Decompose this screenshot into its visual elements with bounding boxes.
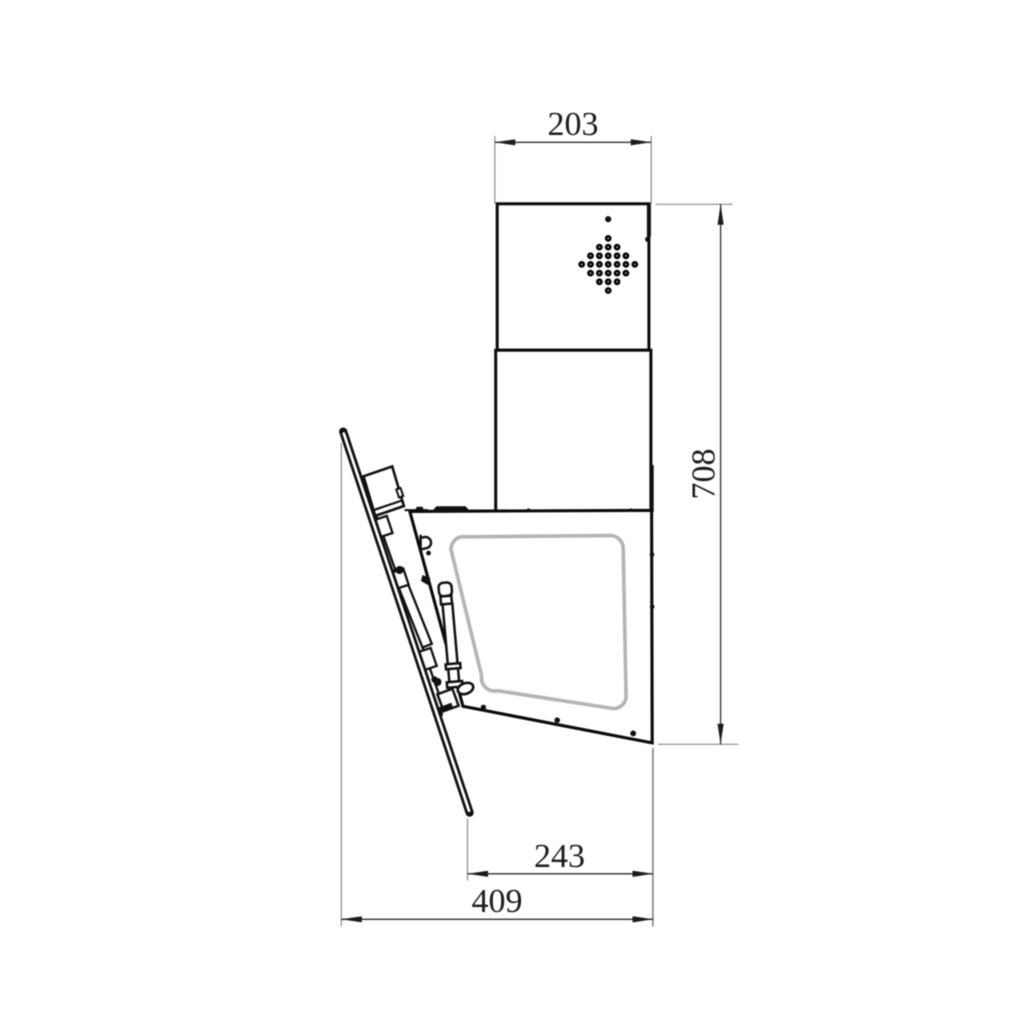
svg-text:409: 409 — [472, 883, 523, 920]
svg-text:243: 243 — [534, 838, 585, 875]
svg-text:203: 203 — [548, 106, 599, 143]
svg-text:708: 708 — [686, 449, 723, 500]
